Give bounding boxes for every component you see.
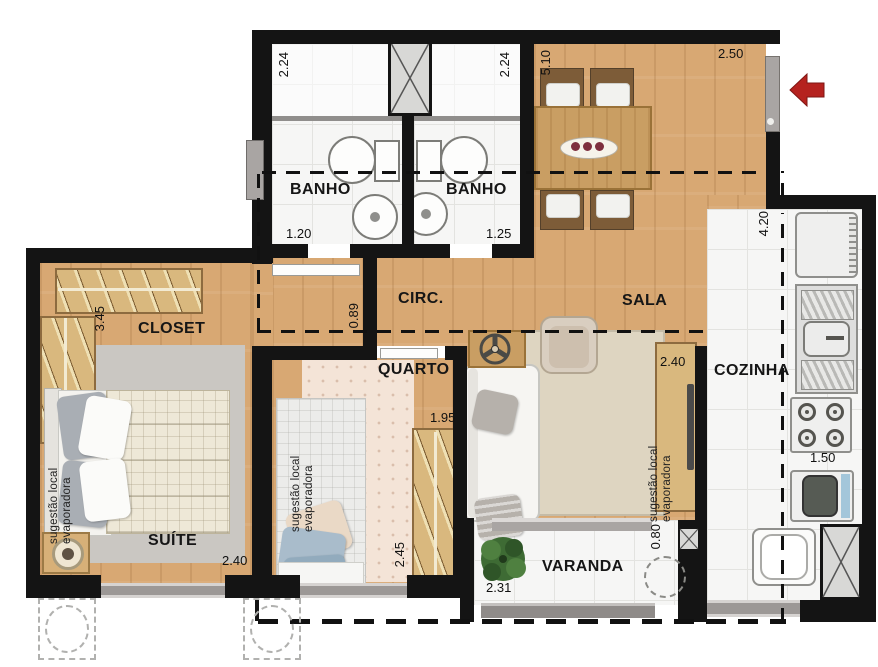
dining-chair-3 xyxy=(540,190,584,230)
room-label-closet: CLOSET xyxy=(138,320,205,338)
sink2-drain xyxy=(421,209,431,219)
wall-laundry-bottom xyxy=(800,600,876,622)
room-label-circ: CIRC. xyxy=(398,290,444,308)
section-line-vertical-left xyxy=(257,171,260,332)
closet-rack-top xyxy=(55,268,203,314)
stove-burner-4 xyxy=(826,429,844,447)
banho2-shower-divider xyxy=(414,116,520,121)
duct-banho-left xyxy=(246,140,264,200)
floor-strip xyxy=(707,195,766,209)
dim-entry-width: 2.50 xyxy=(718,46,743,61)
quarto-door-leaf xyxy=(380,348,438,359)
dim-banho1-width: 1.20 xyxy=(286,226,311,241)
kitchen-dash-upper xyxy=(781,171,784,197)
wall-suite-bottom-left xyxy=(26,575,101,598)
dim-banho2-depth: 2.24 xyxy=(497,52,512,77)
laundry-window xyxy=(707,600,800,617)
shaft-small-icon xyxy=(678,527,700,551)
boundary-dash-bottom xyxy=(258,619,786,624)
toilet1-tank xyxy=(374,140,400,182)
room-label-banho1: BANHO xyxy=(290,181,351,199)
shaft-laundry-icon xyxy=(820,524,862,600)
wall-banho2-dining xyxy=(520,30,534,258)
wall-top xyxy=(252,30,780,44)
washer-drum xyxy=(802,475,838,517)
dining-chair-4 xyxy=(590,190,634,230)
evaporator-note-sala: sugestão local evaporadora xyxy=(648,412,674,522)
dim-banho1-depth: 2.24 xyxy=(276,52,291,77)
wall-quarto-bottom-b xyxy=(407,575,453,598)
shaft-bathrooms-icon xyxy=(388,40,432,116)
platter-fruit-2 xyxy=(583,142,592,151)
wall-quarto-bottom-a xyxy=(272,575,300,598)
suite-lamp-center xyxy=(62,548,74,560)
suite-entry-floor xyxy=(252,263,273,353)
dim-banho2-width: 1.25 xyxy=(486,226,511,241)
quarto-wardrobe-rail xyxy=(434,432,437,580)
evaporator-note-line1: sugestão local xyxy=(290,428,303,532)
fridge-coil xyxy=(849,217,856,273)
sink1-drain xyxy=(370,212,380,222)
dim-circ-opening: 0.89 xyxy=(346,303,361,328)
closet-rail-top xyxy=(58,288,200,291)
wall-cozinha-right xyxy=(862,195,876,622)
evaporator-note-suite: sugestão local evaporadora xyxy=(48,424,74,544)
laundry-tank-basin xyxy=(760,534,808,580)
sink-drainboard-bottom xyxy=(801,360,854,390)
outdoor-unit-circle-1 xyxy=(45,605,89,653)
quarto-window xyxy=(300,583,407,598)
toilet1-bowl xyxy=(328,136,376,184)
room-label-quarto: QUARTO xyxy=(378,361,449,379)
varanda-railing xyxy=(481,603,655,618)
stove-burner-1 xyxy=(798,403,816,421)
washer-panel xyxy=(841,474,850,518)
wall-closet-top xyxy=(26,248,273,263)
entrance-door-handle xyxy=(767,118,774,125)
sofa-pillow-1 xyxy=(470,388,519,436)
room-label-banho2: BANHO xyxy=(446,181,507,199)
varanda-sliding-door xyxy=(492,518,652,531)
room-label-varanda: VARANDA xyxy=(542,558,624,576)
dim-quarto-wardrobe: 1.95 xyxy=(430,410,455,425)
banho1-shower-divider xyxy=(272,116,402,121)
wall-banho1-bottom-a xyxy=(272,244,308,258)
evaporator-note-line2: evaporadora xyxy=(303,428,316,532)
dim-cozinha-width: 1.50 xyxy=(810,450,835,465)
outdoor-unit-circle-2 xyxy=(250,605,294,653)
toilet2-bowl xyxy=(440,136,488,184)
evaporator-note-quarto: sugestão local evaporadora xyxy=(290,428,316,532)
floor-plan: BANHO BANHO CIRC. SALA CLOSET QUARTO SUÍ… xyxy=(0,0,878,667)
evaporator-note-line2: evaporadora xyxy=(61,424,74,544)
dim-quarto-depth: 2.45 xyxy=(392,542,407,567)
sofa-back xyxy=(468,368,478,518)
wall-varanda-left xyxy=(460,518,474,622)
dim-cozinha-depth: 4.20 xyxy=(756,211,771,236)
kitchen-dash-line xyxy=(781,213,784,622)
dim-suite-width: 2.40 xyxy=(222,553,247,568)
section-line-horizontal-top xyxy=(262,171,766,174)
wall-left-outer xyxy=(26,248,40,598)
table-fan-icon xyxy=(478,332,512,366)
platter-fruit-1 xyxy=(571,142,580,151)
stove-burner-3 xyxy=(798,429,816,447)
wall-banho-divider xyxy=(402,114,414,246)
evaporator-note-line1: sugestão local xyxy=(648,412,661,522)
section-line-horizontal-mid xyxy=(257,330,707,333)
wall-circ-vestibule xyxy=(363,258,377,348)
platter-fruit-3 xyxy=(595,142,604,151)
dim-sala-depth: 5.10 xyxy=(538,50,553,75)
tv xyxy=(687,384,694,470)
toilet2-tank xyxy=(416,140,442,182)
wall-quarto-top-a xyxy=(272,346,377,360)
suite-door-leaf xyxy=(272,264,360,276)
dining-chair-2 xyxy=(590,68,634,108)
dim-closet-depth: 3.45 xyxy=(92,306,107,331)
room-label-sala: SALA xyxy=(622,292,667,310)
dim-sala-tv-wall: 2.40 xyxy=(660,354,685,369)
sink-faucet xyxy=(826,336,844,340)
wall-sala-cozinha xyxy=(695,346,707,522)
banho1-shower-area xyxy=(272,44,402,118)
room-label-cozinha: COZINHA xyxy=(714,362,790,380)
sink-drainboard-top xyxy=(801,290,854,320)
entrance-arrow-icon xyxy=(788,72,826,108)
suite-pillow-white-2 xyxy=(79,457,132,522)
room-label-suite: SUÍTE xyxy=(148,532,197,550)
stove-burner-2 xyxy=(826,403,844,421)
suite-window xyxy=(101,583,225,598)
wall-banho-bottom-b xyxy=(350,244,450,258)
dim-varanda-opening: 0.80 xyxy=(648,524,663,549)
dim-varanda-width: 2.31 xyxy=(486,580,511,595)
wall-suite-quarto-divider xyxy=(252,346,272,598)
evaporator-note-line1: sugestão local xyxy=(48,424,61,544)
evaporator-note-line2: evaporadora xyxy=(661,412,674,522)
wall-cozinha-top xyxy=(766,195,876,209)
optional-passage-circle xyxy=(644,556,686,598)
